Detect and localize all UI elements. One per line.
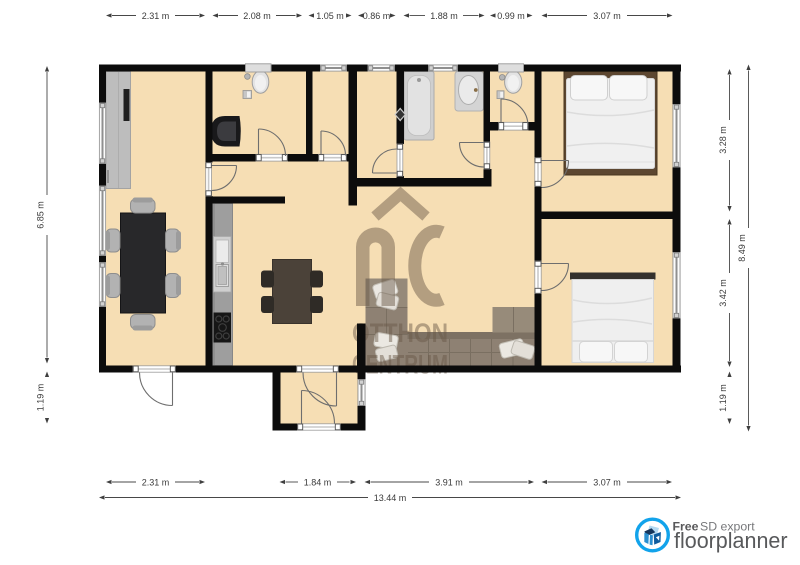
- svg-text:1.84 m: 1.84 m: [304, 477, 332, 487]
- svg-text:1.19 m: 1.19 m: [36, 384, 46, 412]
- svg-text:13.44 m: 13.44 m: [374, 493, 407, 503]
- svg-text:1.05 m: 1.05 m: [316, 11, 344, 21]
- svg-text:2.31 m: 2.31 m: [142, 477, 170, 487]
- svg-text:CENTRUM: CENTRUM: [352, 350, 448, 380]
- svg-text:OTTHON: OTTHON: [352, 318, 448, 348]
- svg-text:3.07 m: 3.07 m: [593, 477, 621, 487]
- svg-text:1.88 m: 1.88 m: [430, 11, 458, 21]
- svg-text:0.86 m: 0.86 m: [363, 11, 391, 21]
- svg-text:3.42 m: 3.42 m: [718, 279, 728, 307]
- svg-text:6.85 m: 6.85 m: [36, 201, 46, 229]
- svg-text:2.08 m: 2.08 m: [243, 11, 271, 21]
- svg-text:8.49 m: 8.49 m: [737, 234, 747, 262]
- svg-text:3.28 m: 3.28 m: [718, 126, 728, 154]
- svg-text:3.07 m: 3.07 m: [593, 11, 621, 21]
- svg-text:1.19 m: 1.19 m: [718, 384, 728, 412]
- svg-text:2.31 m: 2.31 m: [142, 11, 170, 21]
- svg-text:3.91 m: 3.91 m: [435, 477, 463, 487]
- svg-text:0.99 m: 0.99 m: [497, 11, 525, 21]
- svg-text:floorplanner: floorplanner: [674, 528, 788, 553]
